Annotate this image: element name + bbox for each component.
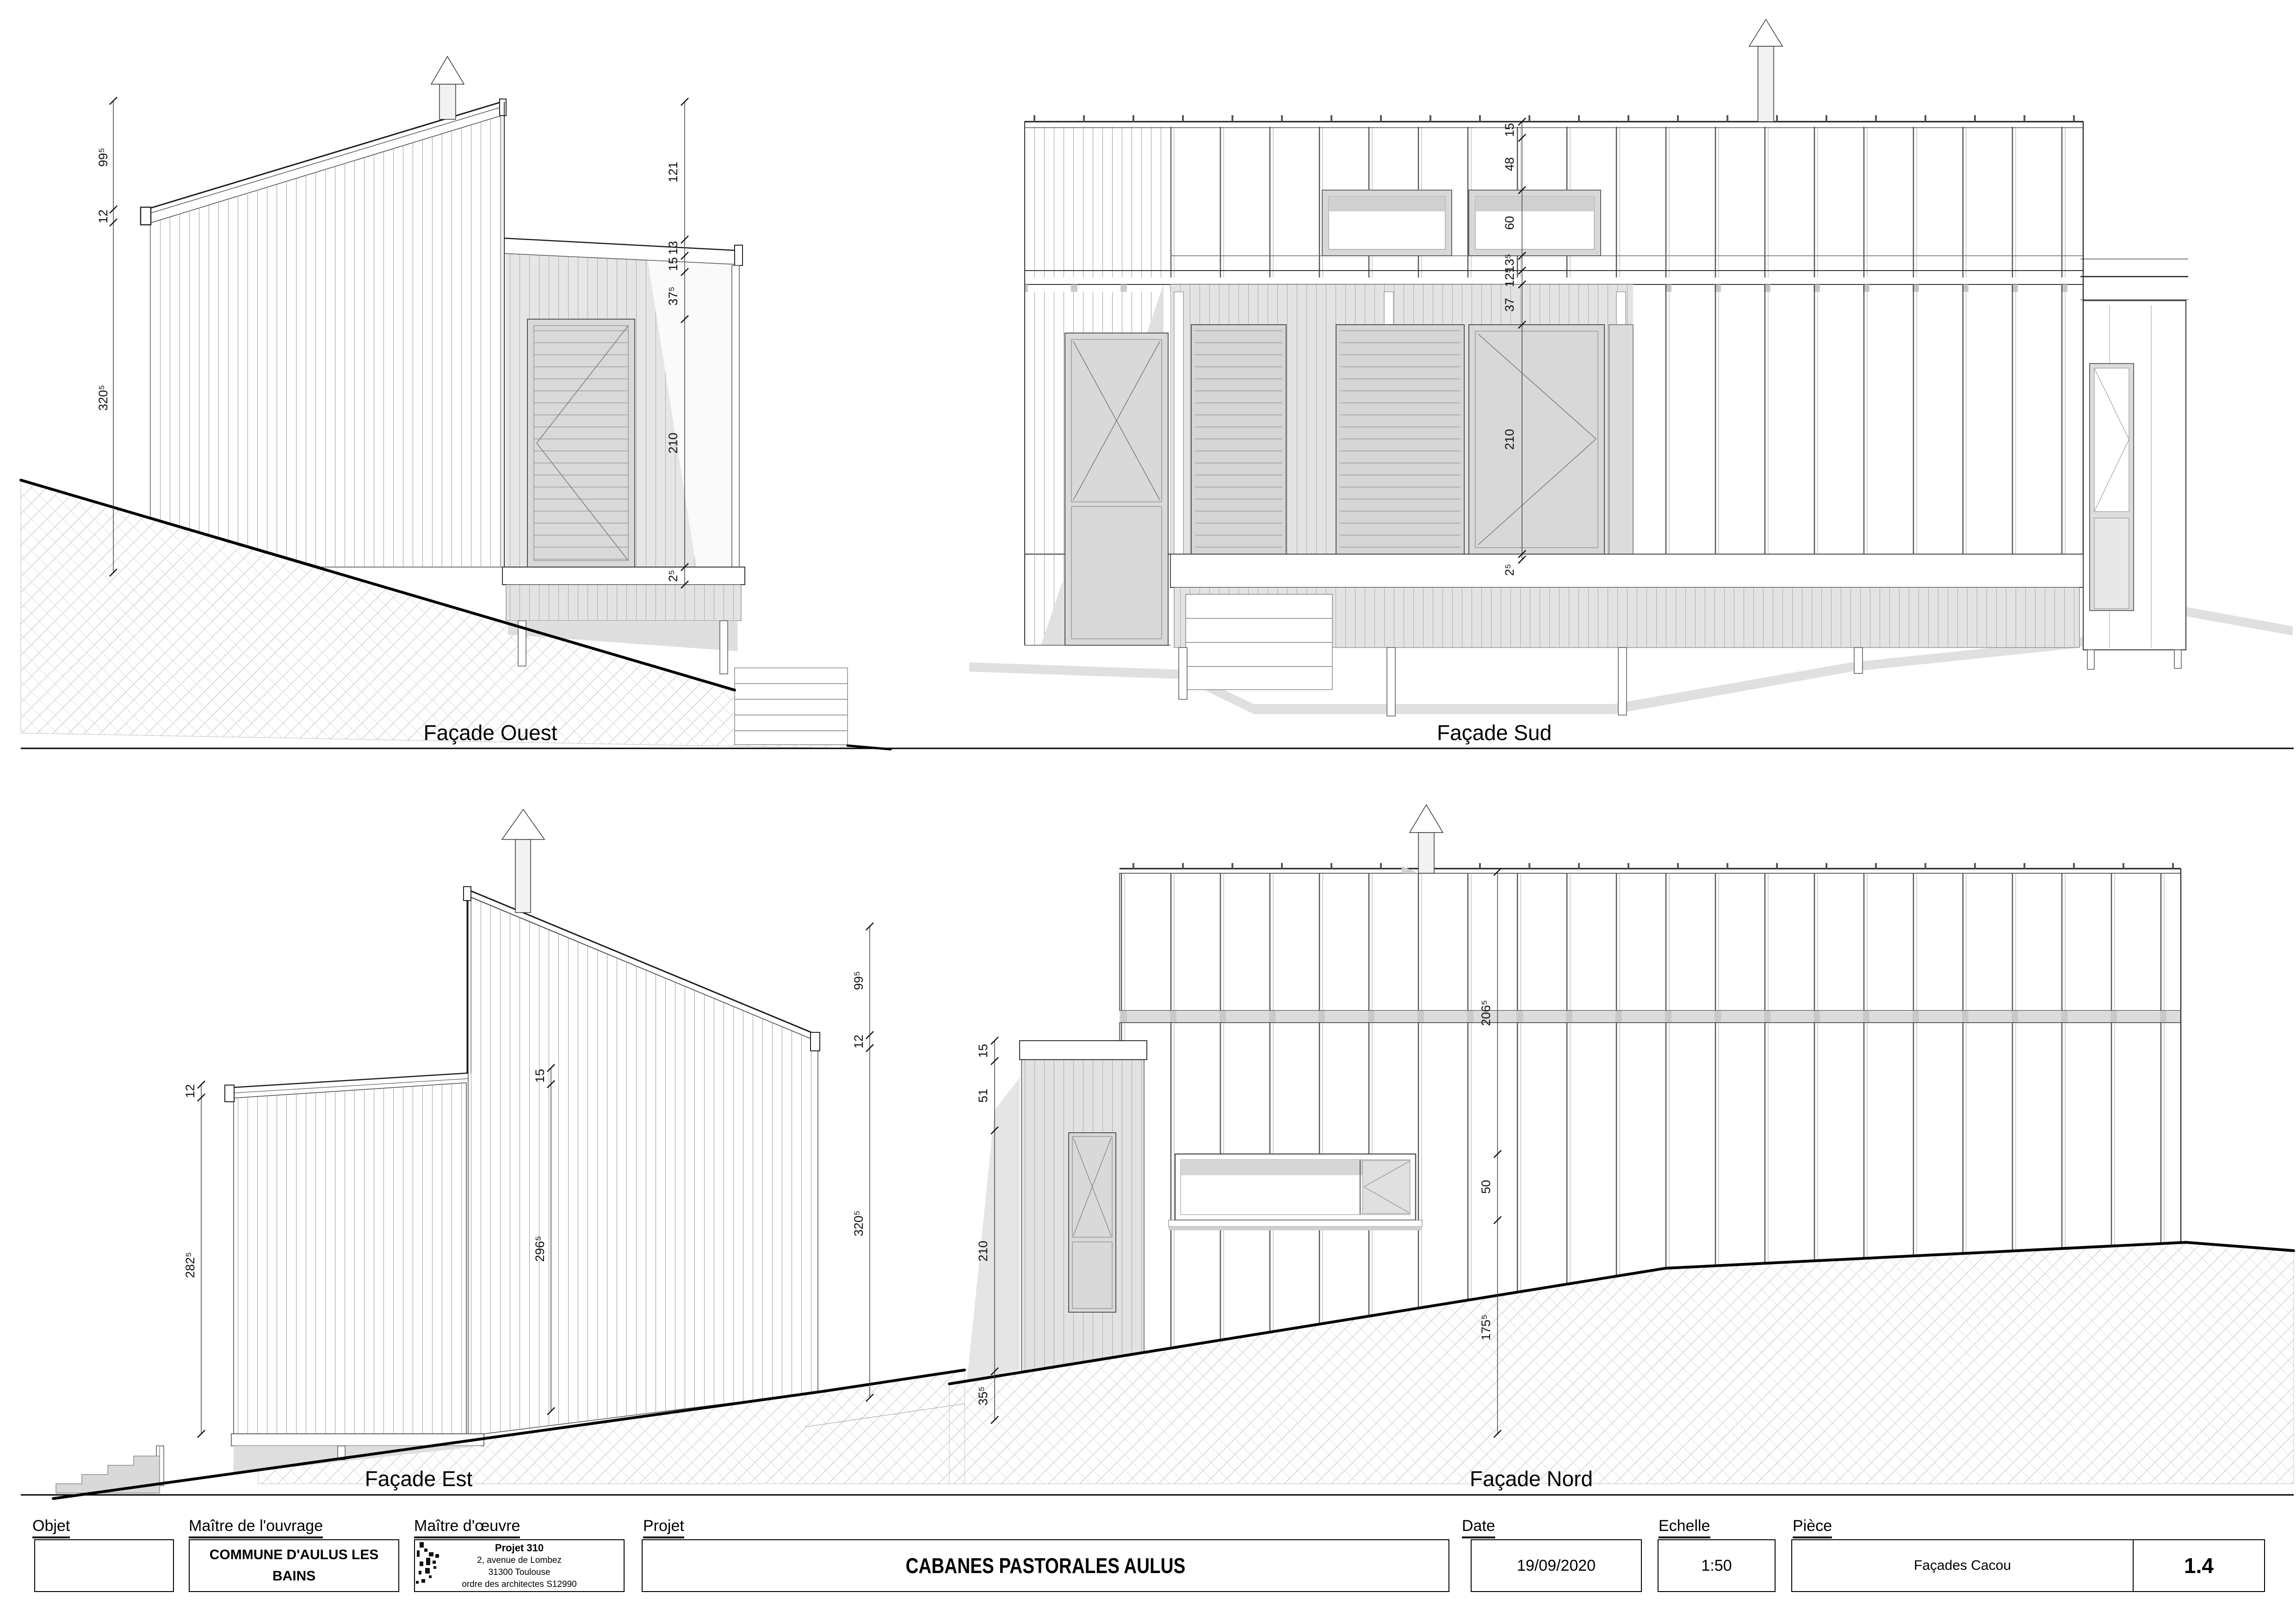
dim-label: 206⁵ bbox=[1479, 1000, 1493, 1026]
dim-label: 12 bbox=[183, 1084, 197, 1098]
dim-label: 15 bbox=[533, 1069, 547, 1083]
dim-label: 320⁵ bbox=[852, 1210, 866, 1236]
dimension-chain-est-right: 99⁵ 12 320⁵ bbox=[852, 923, 873, 1401]
door bbox=[1065, 333, 1168, 645]
dim-label: 210 bbox=[1503, 429, 1516, 450]
cast-shadow bbox=[967, 1078, 1020, 1382]
dim-label: 2⁵ bbox=[666, 570, 680, 582]
dim-label: 37 bbox=[1503, 298, 1516, 312]
deck-rim bbox=[1170, 554, 2083, 587]
architect-logo-icon bbox=[415, 1540, 444, 1585]
porch bbox=[1020, 1041, 1147, 1372]
dim-label: 15 bbox=[1503, 123, 1516, 137]
facade-est-drawing: 12 282⁵ 15 296⁵ 99⁵ 12 320⁵ Façade Est bbox=[53, 809, 965, 1499]
door bbox=[1469, 325, 1604, 554]
dim-label: 15 bbox=[666, 257, 680, 271]
strip-window bbox=[1169, 1154, 1422, 1230]
annex bbox=[2080, 259, 2188, 650]
dim-label: 296⁵ bbox=[533, 1236, 547, 1262]
elevations-svg: 99⁵ 12 320⁵ 121 13 15 37⁵ 210 2⁵ Façade … bbox=[0, 0, 2296, 1623]
maitre-ouvrage-value: COMMUNE D'AULUS LES BAINS bbox=[193, 1544, 395, 1587]
chimney bbox=[502, 809, 545, 913]
dim-label: 35⁵ bbox=[976, 1386, 990, 1405]
side-panel bbox=[1609, 325, 1633, 554]
maitre-oeuvre-box: Projet 310 2, avenue de Lombez 31300 Tou… bbox=[414, 1539, 625, 1592]
dim-label: 60 bbox=[1503, 216, 1516, 230]
dim-label: 210 bbox=[666, 432, 680, 453]
facade-nord-drawing: 15 51 210 35⁵ 206⁵ 50 175⁵ Façade Nord bbox=[949, 805, 2294, 1491]
dim-label: 121 bbox=[666, 161, 680, 182]
dim-label: 320⁵ bbox=[96, 385, 110, 411]
maitre-ouvrage-box: COMMUNE D'AULUS LES BAINS bbox=[189, 1539, 399, 1592]
dim-label: 51 bbox=[976, 1089, 990, 1103]
date-value: 19/09/2020 bbox=[1517, 1557, 1596, 1575]
piece-number: 1.4 bbox=[2133, 1540, 2264, 1591]
door bbox=[527, 319, 635, 567]
piece-value: Façades Cacou bbox=[1792, 1540, 2133, 1591]
dim-label: 13 bbox=[666, 241, 680, 255]
post bbox=[720, 621, 728, 674]
projet-value: CABANES PASTORALES AULUS bbox=[906, 1553, 1186, 1578]
porch-post bbox=[732, 265, 739, 567]
dim-label: 12 bbox=[96, 210, 110, 223]
dim-label: 12⁵ bbox=[1503, 268, 1516, 287]
chimney bbox=[1749, 19, 1782, 122]
facade-sud-label: Façade Sud bbox=[1437, 721, 1552, 745]
dim-label: 210 bbox=[976, 1240, 990, 1261]
dim-label: 50 bbox=[1479, 1180, 1493, 1194]
facade-est-label: Façade Est bbox=[365, 1467, 473, 1491]
facade-nord-label: Façade Nord bbox=[1470, 1467, 1593, 1491]
facade-ouest-label: Façade Ouest bbox=[424, 721, 557, 745]
dim-label: 282⁵ bbox=[183, 1252, 197, 1278]
dim-label: 37⁵ bbox=[666, 286, 680, 305]
stairs bbox=[1186, 594, 1332, 690]
maitre-ouvrage-label: Maître de l'ouvrage bbox=[189, 1517, 323, 1538]
dim-label: 99⁵ bbox=[96, 148, 110, 167]
projet-label: Projet bbox=[643, 1517, 684, 1538]
clerestory-window bbox=[1469, 190, 1601, 256]
dim-label: 2⁵ bbox=[1503, 564, 1516, 576]
clerestory-window bbox=[1322, 190, 1452, 256]
facade-ouest-drawing: 99⁵ 12 320⁵ 121 13 15 37⁵ 210 2⁵ Façade … bbox=[21, 56, 891, 749]
dimension-chain-est-left: 12 282⁵ bbox=[183, 1081, 205, 1438]
stairs bbox=[735, 668, 848, 745]
piece-box: Façades Cacou 1.4 bbox=[1791, 1539, 2265, 1592]
date-box: 19/09/2020 bbox=[1471, 1539, 1642, 1592]
facade-sud-drawing: 15 48 60 13⁵ 12⁵ 37 210 2⁵ Façade Sud bbox=[969, 19, 2293, 745]
piece-label: Pièce bbox=[1793, 1517, 1832, 1538]
drawing-sheet: 99⁵ 12 320⁵ 121 13 15 37⁵ 210 2⁵ Façade … bbox=[0, 0, 2296, 1623]
door bbox=[1069, 1133, 1116, 1312]
echelle-box: 1:50 bbox=[1658, 1539, 1776, 1592]
chimney bbox=[1402, 805, 1443, 873]
chimney bbox=[431, 56, 464, 119]
objet-label: Objet bbox=[32, 1517, 70, 1538]
dim-label: 175⁵ bbox=[1479, 1314, 1493, 1340]
dim-label: 15 bbox=[976, 1044, 990, 1058]
dim-label: 48 bbox=[1503, 157, 1516, 171]
echelle-label: Echelle bbox=[1659, 1517, 1710, 1538]
echelle-value: 1:50 bbox=[1701, 1557, 1732, 1575]
maitre-oeuvre-label: Maître d'œuvre bbox=[414, 1517, 520, 1538]
tall-window bbox=[2090, 364, 2134, 611]
dim-label: 99⁵ bbox=[852, 971, 866, 990]
dim-label: 12 bbox=[852, 1035, 866, 1049]
date-label: Date bbox=[1462, 1517, 1495, 1538]
architect-address: Projet 310 2, avenue de Lombez 31300 Tou… bbox=[418, 1541, 621, 1591]
objet-box bbox=[34, 1539, 174, 1592]
projet-box: CABANES PASTORALES AULUS bbox=[642, 1539, 1449, 1592]
